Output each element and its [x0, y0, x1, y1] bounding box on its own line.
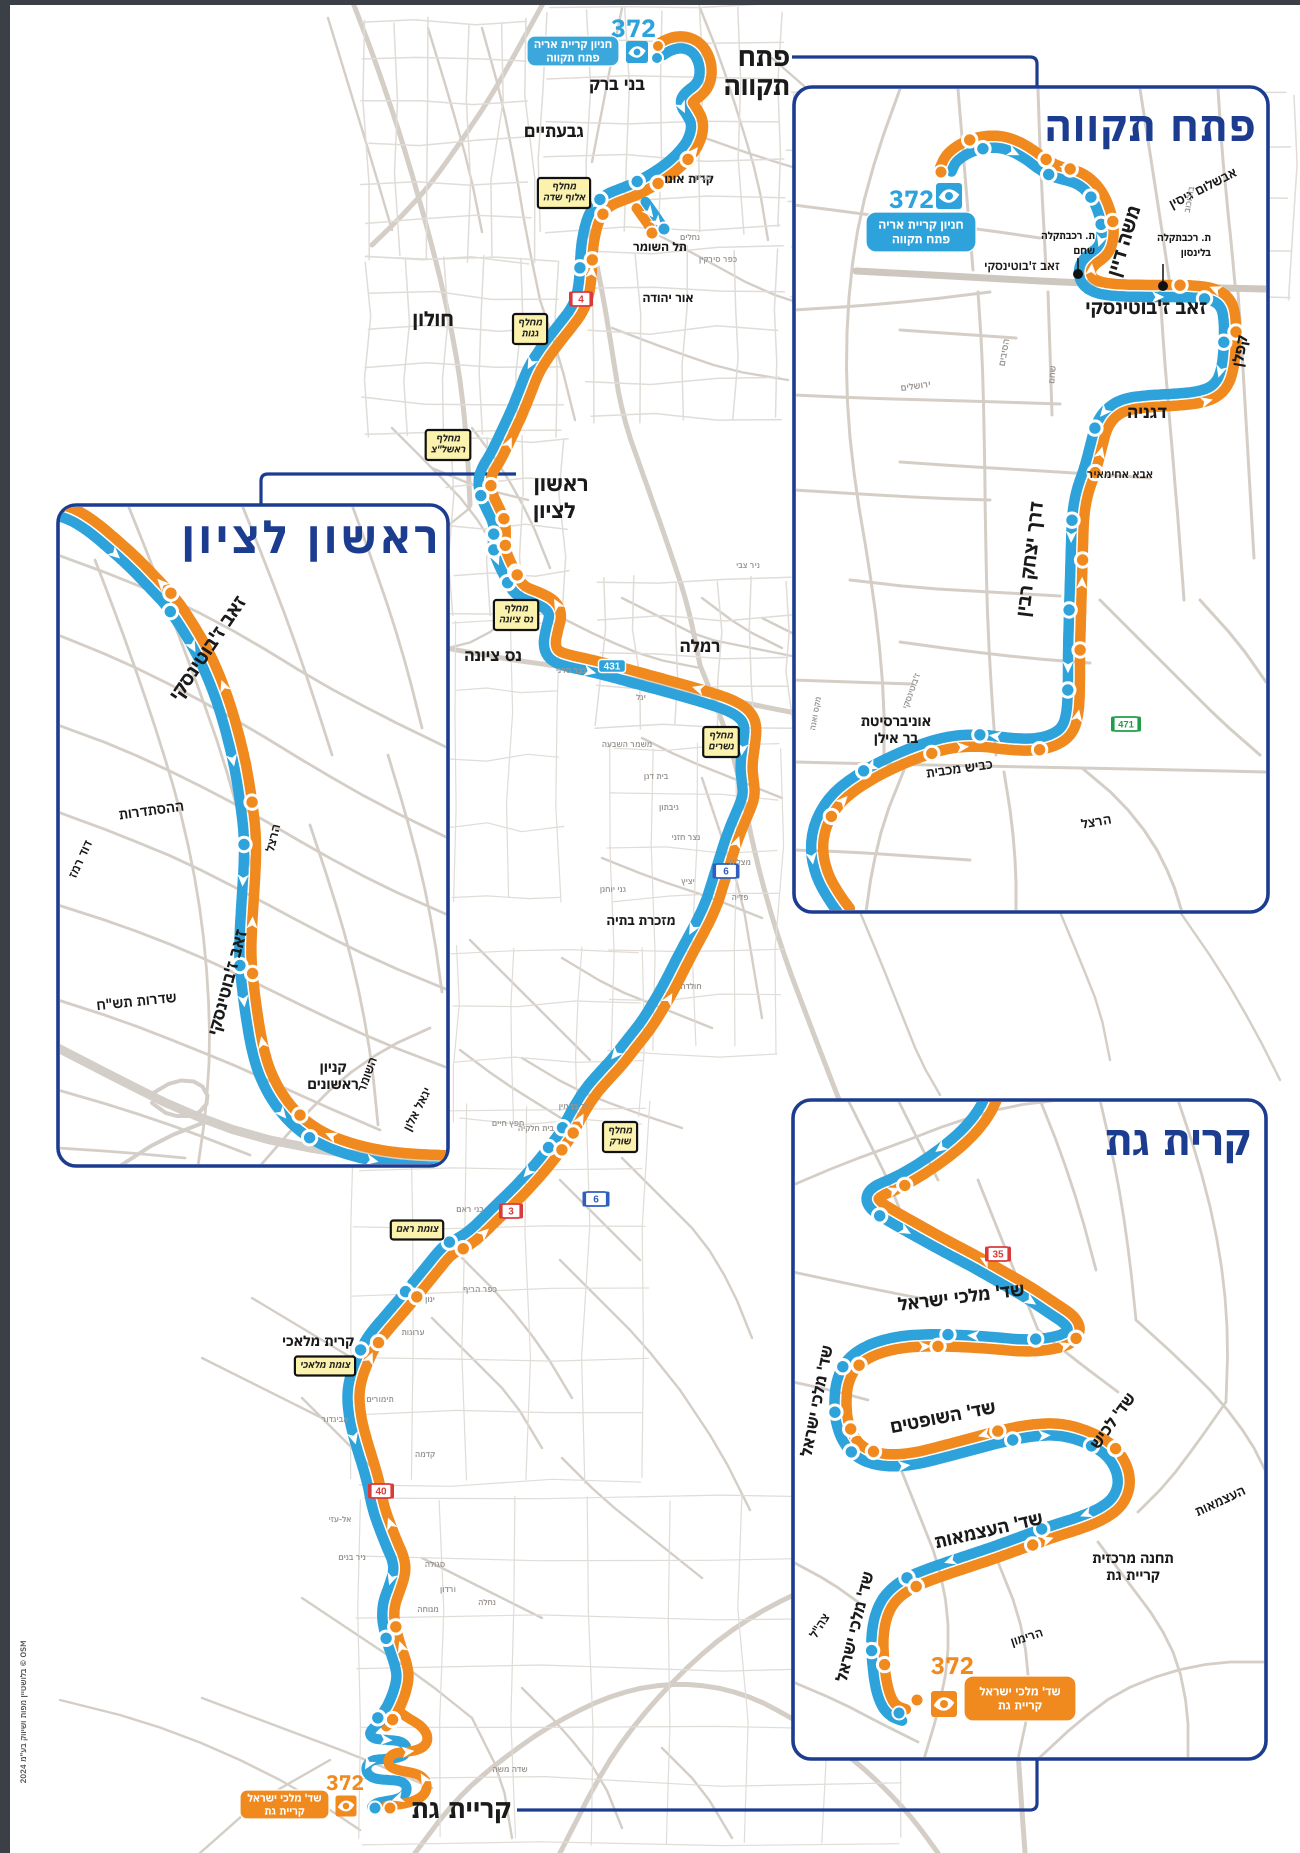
svg-text:4: 4: [578, 295, 584, 306]
svg-text:471: 471: [1118, 719, 1135, 730]
svg-text:40: 40: [375, 1487, 387, 1498]
svg-text:6: 6: [593, 1195, 599, 1206]
svg-text:431: 431: [604, 662, 621, 673]
svg-text:3: 3: [508, 1207, 514, 1218]
svg-text:6: 6: [723, 867, 729, 878]
svg-text:35: 35: [992, 1250, 1004, 1261]
